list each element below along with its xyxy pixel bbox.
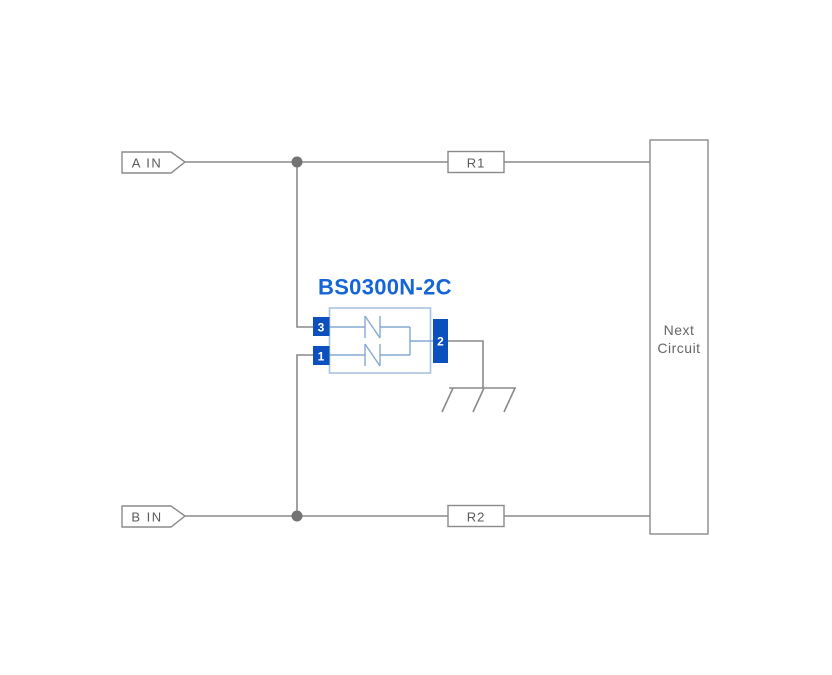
input-tag-b-label: B IN: [131, 510, 162, 525]
next-circuit-label-line2: Circuit: [657, 340, 700, 356]
resistor-r2: R2: [448, 506, 504, 527]
wire-b-to-pin1: [297, 355, 313, 516]
pin-2-label: 2: [437, 335, 444, 349]
junction-dot-a: [292, 157, 303, 168]
component-bs0300n-2c: BS0300N-2C: [313, 275, 452, 374]
wire-pin2-to-ground: [448, 341, 483, 388]
resistor-r1: R1: [448, 152, 504, 173]
wire-a-to-pin3: [297, 162, 313, 327]
next-circuit-block: Next Circuit: [650, 140, 708, 534]
pin-2: 2: [433, 319, 448, 363]
junction-dot-b: [292, 511, 303, 522]
ground-hatch-2: [473, 388, 484, 412]
next-circuit-label-line1: Next: [664, 322, 695, 338]
pin-3: 3: [313, 317, 330, 336]
circuit-diagram-canvas: A IN B IN R1 R2 Next Circuit BS0300N-2C: [0, 0, 832, 675]
resistor-r2-label: R2: [467, 510, 486, 525]
schematic-svg: A IN B IN R1 R2 Next Circuit BS0300N-2C: [0, 0, 832, 675]
input-tag-b: B IN: [122, 506, 185, 527]
input-tag-a: A IN: [122, 152, 185, 173]
input-tag-a-label: A IN: [132, 156, 163, 171]
pin-1-label: 1: [318, 350, 325, 364]
ground-hatch-1: [442, 388, 453, 412]
pin-1: 1: [313, 346, 330, 365]
pin-3-label: 3: [318, 321, 325, 335]
ground-symbol: [442, 388, 516, 412]
ground-hatch-3: [504, 388, 515, 412]
resistor-r1-label: R1: [467, 156, 486, 171]
component-part-number: BS0300N-2C: [318, 275, 452, 300]
